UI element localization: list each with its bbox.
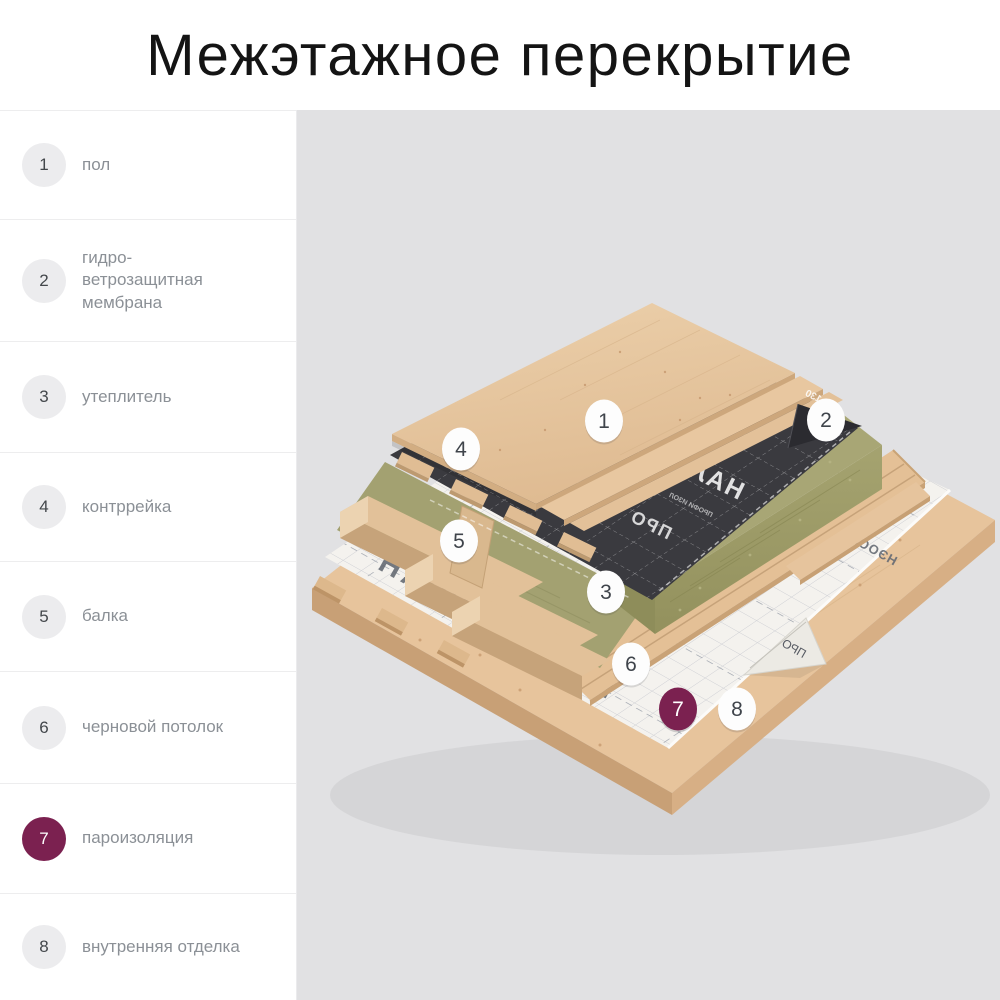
item-label: черновой потолок bbox=[82, 716, 223, 738]
page: Межэтажное перекрытие 1 пол 2 гидро- вет… bbox=[0, 0, 1000, 1000]
sidebar-item-vapor-barrier[interactable]: 7 пароизоляция bbox=[0, 783, 296, 893]
page-title: Межэтажное перекрытие bbox=[146, 22, 854, 89]
svg-text:3: 3 bbox=[600, 581, 612, 604]
svg-text:1: 1 bbox=[598, 410, 610, 433]
layer-marker-2[interactable]: 2 bbox=[807, 399, 845, 444]
item-label: контррейка bbox=[82, 496, 171, 518]
item-label: внутренняя отделка bbox=[82, 936, 240, 958]
svg-text:5: 5 bbox=[453, 530, 465, 553]
svg-text:4: 4 bbox=[455, 438, 467, 461]
page-header: Межэтажное перекрытие bbox=[0, 0, 1000, 110]
sidebar-item-floor[interactable]: 1 пол bbox=[0, 110, 296, 219]
item-label: пол bbox=[82, 154, 110, 176]
sidebar-item-wind-membrane[interactable]: 2 гидро- ветрозащитная мембрана bbox=[0, 219, 296, 341]
item-number-badge: 7 bbox=[22, 817, 66, 861]
svg-text:7: 7 bbox=[672, 698, 684, 721]
item-number-badge: 6 bbox=[22, 706, 66, 750]
item-number-badge: 2 bbox=[22, 259, 66, 303]
item-number-badge: 3 bbox=[22, 375, 66, 419]
sidebar-item-counter-batten[interactable]: 4 контррейка bbox=[0, 452, 296, 561]
item-label: утеплитель bbox=[82, 386, 171, 408]
layer-marker-8[interactable]: 8 bbox=[718, 688, 756, 733]
diagram-background bbox=[297, 110, 1000, 1000]
layers-sidebar: 1 пол 2 гидро- ветрозащитная мембрана 3 … bbox=[0, 110, 297, 1000]
layer-marker-1[interactable]: 1 bbox=[585, 400, 623, 445]
item-number-badge: 5 bbox=[22, 595, 66, 639]
item-number-badge: 1 bbox=[22, 143, 66, 187]
sidebar-item-interior-finish[interactable]: 8 внутренняя отделка bbox=[0, 893, 296, 1000]
sidebar-item-insulation[interactable]: 3 утеплитель bbox=[0, 341, 296, 452]
layer-marker-4[interactable]: 4 bbox=[442, 428, 480, 473]
svg-text:2: 2 bbox=[820, 409, 832, 432]
sidebar-item-rough-ceiling[interactable]: 6 черновой потолок bbox=[0, 671, 296, 783]
item-label: гидро- ветрозащитная мембрана bbox=[82, 247, 203, 314]
layer-marker-5[interactable]: 5 bbox=[440, 520, 478, 565]
item-number-badge: 8 bbox=[22, 925, 66, 969]
layer-marker-7[interactable]: 7 bbox=[659, 688, 697, 733]
item-label: пароизоляция bbox=[82, 827, 193, 849]
layer-marker-3[interactable]: 3 bbox=[587, 571, 625, 616]
layer-marker-6[interactable]: 6 bbox=[612, 643, 650, 688]
item-number-badge: 4 bbox=[22, 485, 66, 529]
svg-text:8: 8 bbox=[731, 698, 743, 721]
sidebar-item-beam[interactable]: 5 балка bbox=[0, 561, 296, 671]
item-label: балка bbox=[82, 605, 128, 627]
svg-text:6: 6 bbox=[625, 653, 637, 676]
